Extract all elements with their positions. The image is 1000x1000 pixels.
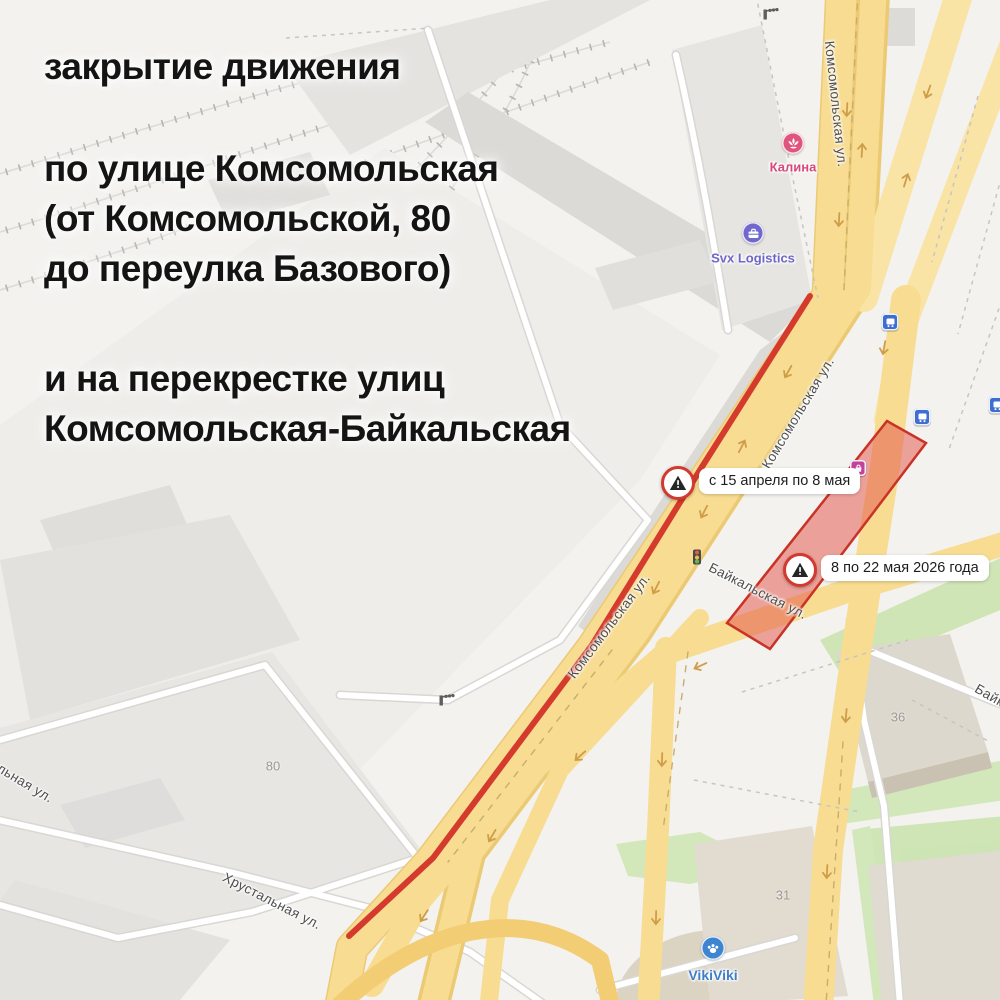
- building-number-80: 80: [266, 759, 280, 774]
- paw-icon: [706, 941, 720, 955]
- closure-date-label-1[interactable]: с 15 апреля по 8 мая: [699, 468, 860, 494]
- headline-line-2: по улице Комсомольская: [44, 148, 499, 190]
- warning-triangle-icon: [669, 475, 687, 491]
- closure-date-label-2[interactable]: 8 по 22 мая 2026 года: [821, 555, 989, 581]
- building-number-36: 36: [891, 710, 905, 725]
- kalina-poi-label[interactable]: Калина: [770, 160, 817, 175]
- svx-logistics-poi-label[interactable]: Svx Logistics: [711, 251, 795, 266]
- building-number-31: 31: [776, 888, 790, 903]
- bus-stop-icon[interactable]: [989, 397, 1000, 414]
- briefcase-icon: [747, 227, 760, 240]
- closure-warning-badge warning-triangle-icon[interactable]: [661, 466, 695, 500]
- headline-line-6: Комсомольская-Байкальская: [44, 408, 571, 450]
- flower-icon: [787, 137, 800, 150]
- kalina-poi flower-icon[interactable]: [782, 132, 804, 154]
- headline-line-1: закрытие движения: [44, 46, 400, 88]
- vikiviki-poi paw-icon[interactable]: [701, 936, 725, 960]
- headline-line-5: и на перекрестке улиц: [44, 358, 444, 400]
- closure-warning-badge warning-triangle-icon[interactable]: [783, 553, 817, 587]
- bus-stop-icon[interactable]: [882, 314, 899, 331]
- road-closure-map-infographic: Комсомольская ул. Комсомольская ул. Комс…: [0, 0, 1000, 1000]
- bus-stop-icon[interactable]: [914, 409, 931, 426]
- warning-triangle-icon: [791, 562, 809, 578]
- vikiviki-poi-label[interactable]: VikiViki: [688, 967, 737, 983]
- headline-line-4: до переулка Базового): [44, 248, 451, 290]
- headline-line-3: (от Комсомольской, 80: [44, 198, 451, 240]
- svx-logistics-poi briefcase-icon[interactable]: [742, 222, 764, 244]
- traffic-light-icon: [693, 550, 701, 565]
